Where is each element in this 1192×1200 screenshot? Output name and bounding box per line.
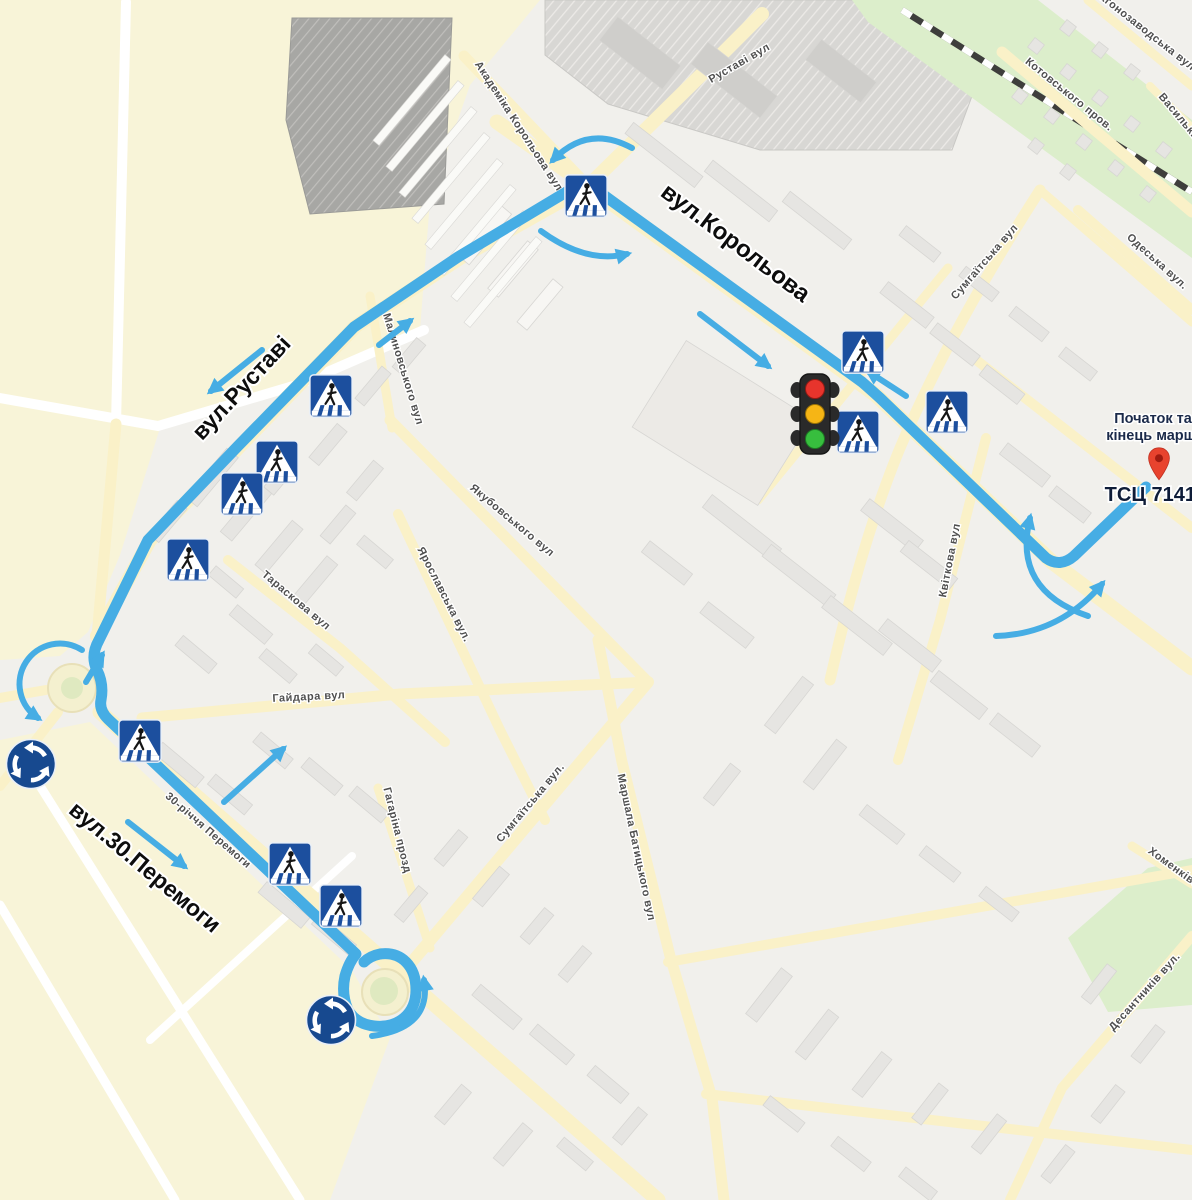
pedestrian-crossing-sign-icon <box>842 331 884 373</box>
pedestrian-crossing-sign-icon <box>565 175 607 217</box>
endpoint-poi-label: ТСЦ 7141 <box>1105 484 1192 506</box>
pedestrian-crossing-sign-icon <box>926 391 968 433</box>
pedestrian-crossing-sign-icon <box>119 720 161 762</box>
pedestrian-crossing-sign-icon <box>221 473 263 515</box>
map-canvas: Руставі вулАкадеміка Корольова вулКотовс… <box>0 0 1192 1200</box>
pedestrian-crossing-sign-icon <box>837 411 879 453</box>
pedestrian-crossing-sign-icon <box>167 539 209 581</box>
pedestrian-crossing-sign-icon <box>269 843 311 885</box>
endpoint-label-line2: кінець маршрут <box>1106 428 1192 444</box>
traffic-light-icon <box>791 374 840 454</box>
endpoint-label-line1: Початок та <box>1114 411 1192 427</box>
pedestrian-crossing-sign-icon <box>320 885 362 927</box>
pedestrian-crossing-sign-icon <box>310 375 352 417</box>
